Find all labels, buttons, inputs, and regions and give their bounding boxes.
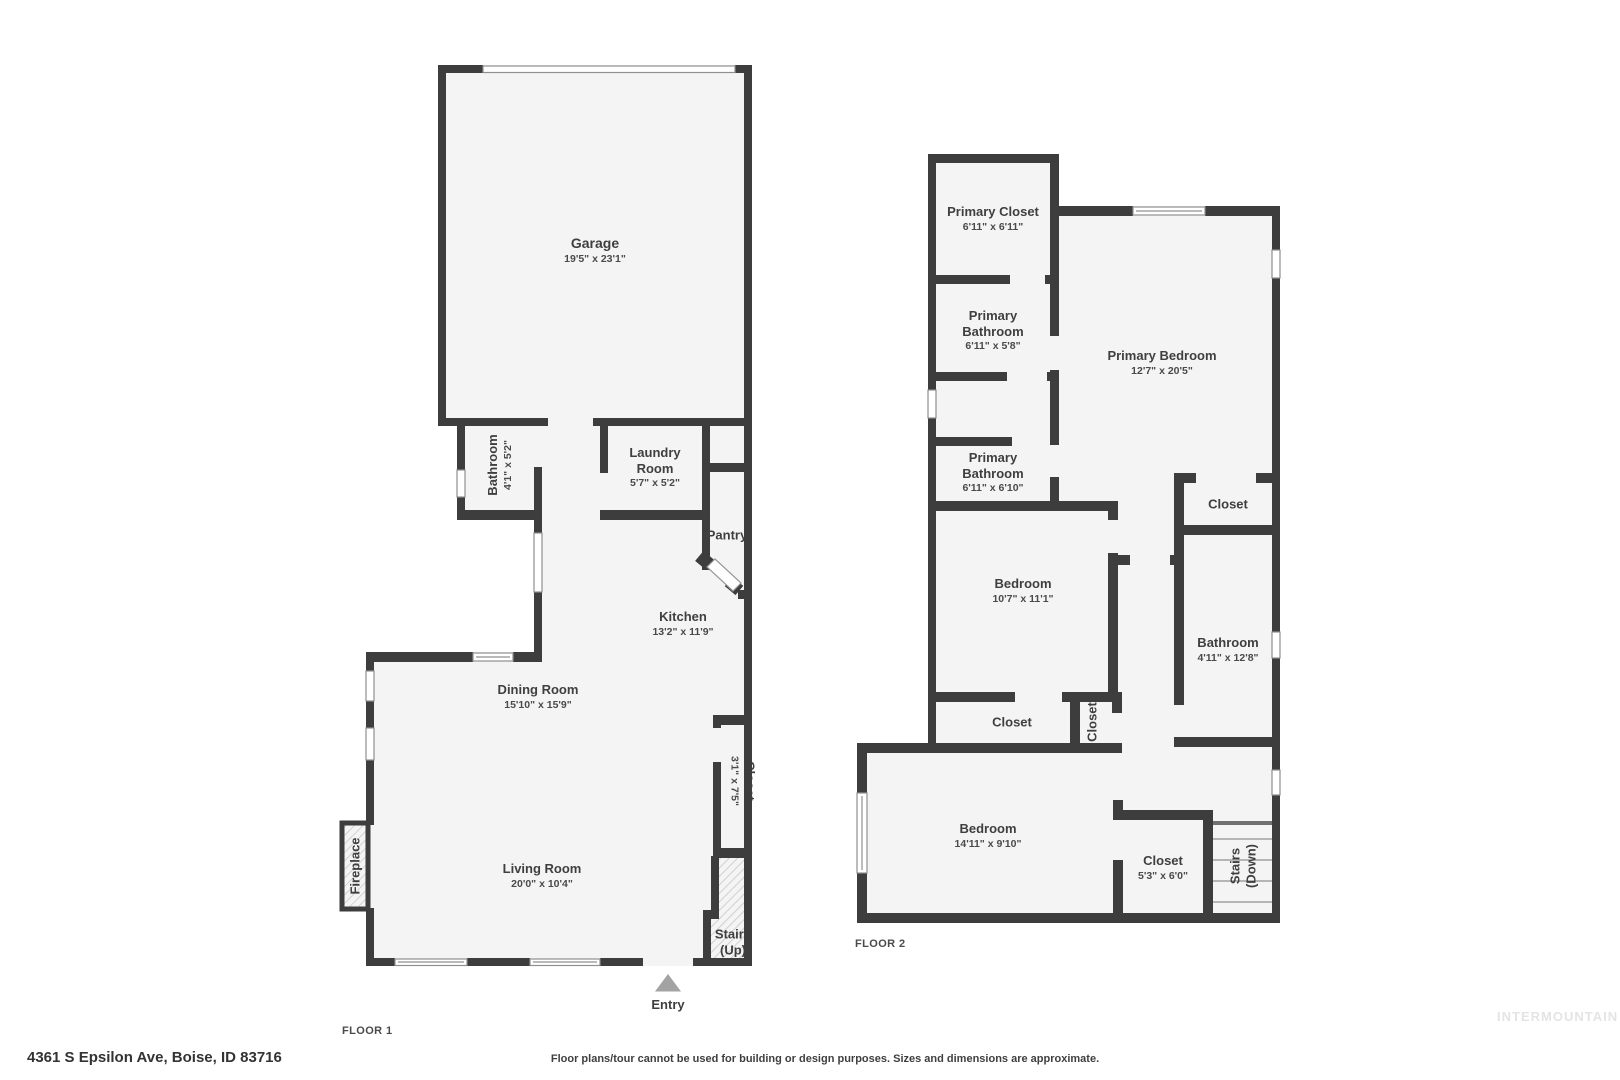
room-name: Fireplace	[347, 837, 363, 894]
room-name: Kitchen	[652, 609, 713, 625]
room-name-line1: Stairs	[1228, 844, 1244, 888]
room-name: Bathroom	[485, 434, 501, 495]
room-dims: 6'11" x 6'10"	[951, 481, 1035, 496]
room-dims: 6'11" x 6'11"	[947, 219, 1039, 234]
room-dims: 4'11" x 12'8"	[1197, 650, 1258, 665]
room-name: Closet	[1138, 853, 1188, 869]
room-name: Pantry	[707, 527, 747, 543]
room-label-bathroom-f2: Bathroom 4'11" x 12'8"	[1197, 635, 1258, 666]
room-dims: 5'7" x 5'2"	[617, 476, 693, 491]
floor2-floor	[857, 154, 1280, 923]
room-label-bathroom-f1: Bathroom 4'1" x 5'2"	[485, 434, 516, 495]
room-name: Primary Closet	[947, 204, 1039, 220]
room-name-line2: (Down)	[1243, 844, 1259, 888]
watermark-logo: INTERMOUNTAIN	[1497, 1009, 1618, 1024]
room-dims: 10'7" x 11'1"	[992, 591, 1053, 606]
room-label-pantry: Pantry	[707, 527, 747, 543]
room-label-garage: Garage 19'5" x 23'1"	[564, 236, 626, 267]
room-name: Bedroom	[992, 576, 1053, 592]
entry-label: Entry	[651, 997, 684, 1012]
room-name: Bathroom	[1197, 635, 1258, 651]
room-name: Closet	[742, 756, 758, 806]
room-label-closet-h: Closet	[992, 714, 1032, 730]
floorplan-page: { "colors": { "wall": "#3d3d3d", "floor"…	[0, 0, 1620, 1080]
room-label-dining: Dining Room 15'10" x 15'9"	[498, 682, 579, 713]
room-dims: 3'1" x 7'5"	[727, 756, 742, 806]
room-label-primary-bathroom-1: Primary Bathroom 6'11" x 5'8"	[951, 308, 1035, 354]
room-label-laundry: Laundry Room 5'7" x 5'2"	[617, 445, 693, 491]
room-dims: 4'1" x 5'2"	[500, 434, 515, 495]
room-dims: 14'11" x 9'10"	[955, 836, 1022, 851]
room-dims: 12'7" x 20'5"	[1107, 363, 1216, 378]
room-label-closet-top: Closet	[1208, 496, 1248, 512]
room-name: Primary Bedroom	[1107, 348, 1216, 364]
room-name: Primary Bathroom	[951, 308, 1035, 339]
room-name: Primary Bathroom	[951, 450, 1035, 481]
room-dims: 20'0" x 10'4"	[503, 876, 582, 891]
room-name: Closet	[1084, 702, 1100, 742]
room-label-closet-b: Closet 5'3" x 6'0"	[1138, 853, 1188, 884]
room-name: Laundry Room	[617, 445, 693, 476]
room-label-primary-bathroom-2: Primary Bathroom 6'11" x 6'10"	[951, 450, 1035, 496]
room-dims: 13'2" x 11'9"	[652, 624, 713, 639]
room-dims: 19'5" x 23'1"	[564, 251, 626, 266]
room-label-primary-closet: Primary Closet 6'11" x 6'11"	[947, 204, 1039, 235]
room-name: Closet	[992, 714, 1032, 730]
room-name: Living Room	[503, 861, 582, 877]
room-dims: 15'10" x 15'9"	[498, 697, 579, 712]
room-label-fireplace: Fireplace	[347, 837, 363, 894]
floor2-tag: FLOOR 2	[855, 938, 905, 950]
room-name: Garage	[564, 236, 626, 252]
room-label-closet-f1: Closet 3'1" x 7'5"	[727, 756, 758, 806]
room-label-kitchen: Kitchen 13'2" x 11'9"	[652, 609, 713, 640]
floor1-tag: FLOOR 1	[342, 1025, 392, 1037]
floorplan-drawing	[0, 0, 1620, 1080]
room-label-bedroom-mid: Bedroom 10'7" x 11'1"	[992, 576, 1053, 607]
room-label-bedroom-bottom: Bedroom 14'11" x 9'10"	[955, 821, 1022, 852]
room-label-primary-bedroom: Primary Bedroom 12'7" x 20'5"	[1107, 348, 1216, 379]
room-dims: 5'3" x 6'0"	[1138, 868, 1188, 883]
entry-triangle-icon	[655, 974, 681, 992]
room-name-line2: (Up)	[715, 942, 751, 958]
room-dims: 6'11" x 5'8"	[951, 339, 1035, 354]
room-label-closet-v: Closet	[1084, 702, 1100, 742]
room-name: Bedroom	[955, 821, 1022, 837]
room-label-living: Living Room 20'0" x 10'4"	[503, 861, 582, 892]
room-name: Dining Room	[498, 682, 579, 698]
disclaimer-text: Floor plans/tour cannot be used for buil…	[551, 1053, 1099, 1065]
room-label-stairs-down: Stairs (Down)	[1228, 844, 1259, 888]
property-address: 4361 S Epsilon Ave, Boise, ID 83716	[27, 1049, 282, 1066]
room-name-line1: Stairs	[715, 927, 751, 943]
room-label-stairs-up: Stairs (Up)	[715, 927, 751, 958]
room-name: Closet	[1208, 496, 1248, 512]
